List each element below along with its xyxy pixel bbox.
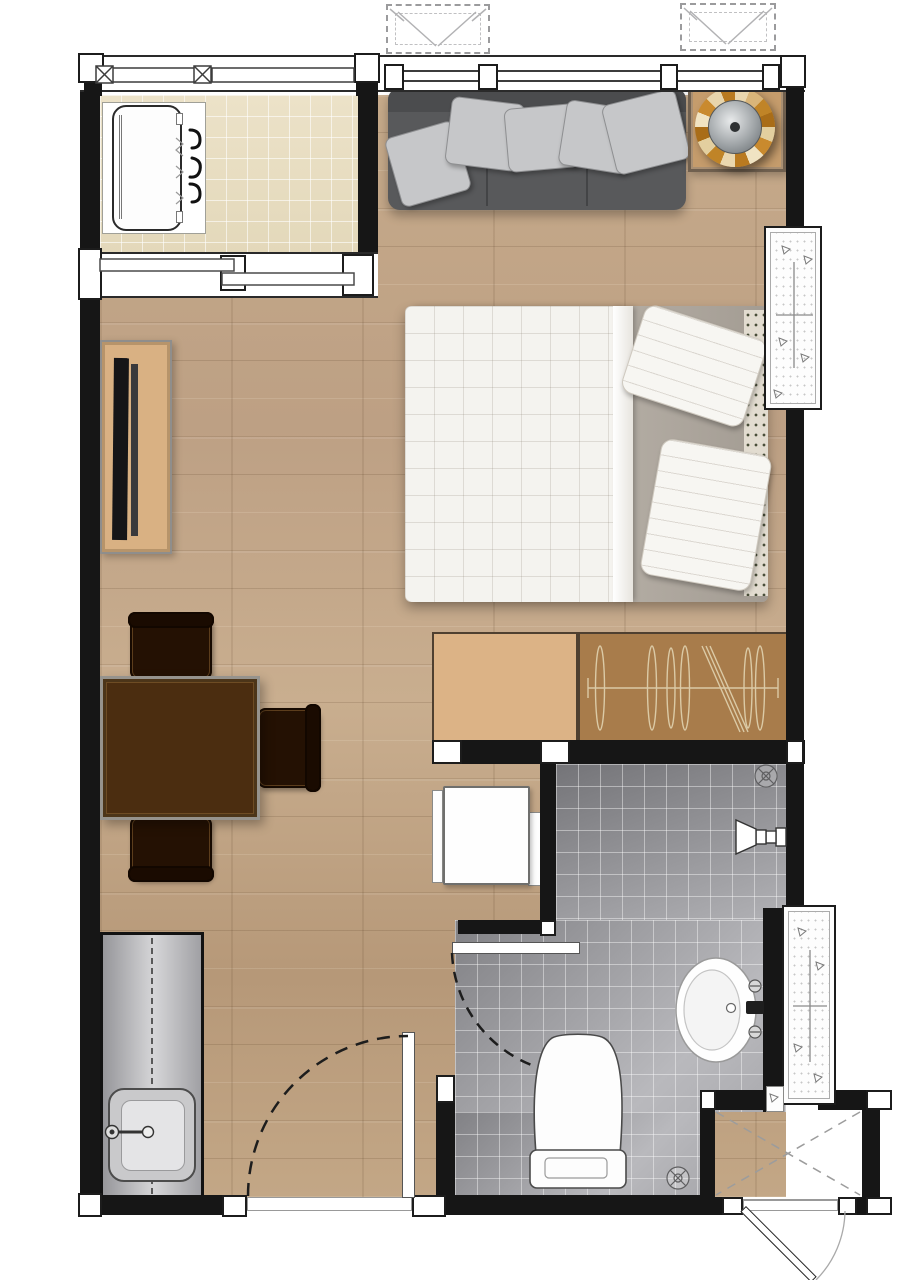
column-block bbox=[78, 53, 104, 83]
bathroom-shower-floor bbox=[556, 764, 786, 922]
tv-screen bbox=[112, 358, 129, 540]
wall-alcove-right bbox=[862, 1110, 880, 1197]
floor-plan-canvas bbox=[0, 0, 905, 1280]
wall-right-upper bbox=[786, 88, 804, 764]
white-cabinet bbox=[443, 786, 530, 885]
column-block bbox=[78, 248, 102, 300]
dining-chair-back bbox=[305, 704, 321, 792]
entry-door-leaf bbox=[740, 1206, 816, 1280]
column-block bbox=[354, 53, 380, 83]
wall-wardrobe bbox=[432, 740, 805, 764]
bed-duvet bbox=[405, 306, 617, 602]
wall-post bbox=[84, 82, 102, 96]
column-block bbox=[786, 740, 804, 764]
wall-top-window-band bbox=[80, 55, 805, 92]
ac-unit-outline bbox=[386, 4, 490, 54]
decor-bowl-center bbox=[730, 122, 740, 132]
main-door-threshold bbox=[247, 1197, 412, 1211]
entry-door-sill bbox=[743, 1199, 838, 1211]
window-jamb bbox=[478, 64, 498, 90]
window-jamb bbox=[762, 64, 780, 90]
entry-door-swing-arc bbox=[816, 1211, 845, 1280]
white-cabinet-flap bbox=[432, 790, 443, 883]
bathroom-door-leaf bbox=[452, 942, 580, 954]
bed-duvet-fold bbox=[613, 306, 633, 602]
wall-right-bath-lower bbox=[763, 908, 784, 1112]
wall-post bbox=[356, 82, 376, 96]
bathroom-floor-lower bbox=[455, 1112, 700, 1197]
wall-bath-left-upper bbox=[540, 764, 556, 924]
column-block bbox=[436, 1075, 455, 1103]
kitchen-sink-basin bbox=[121, 1100, 185, 1171]
ac-ledge-lower bbox=[782, 905, 836, 1105]
side-table bbox=[688, 78, 786, 172]
sliding-door-jamb bbox=[342, 254, 374, 296]
column-block bbox=[866, 1090, 892, 1110]
column-block bbox=[540, 740, 570, 764]
dining-chair-back bbox=[128, 866, 214, 882]
wall-alcove-top-a bbox=[715, 1090, 768, 1110]
column-block bbox=[432, 740, 462, 764]
column-block bbox=[722, 1197, 743, 1215]
column-block bbox=[412, 1195, 446, 1217]
washing-machine bbox=[112, 105, 182, 231]
ac-unit-outline bbox=[680, 3, 776, 51]
column-block bbox=[78, 1193, 102, 1217]
ac-ledge-upper bbox=[764, 226, 822, 410]
ac-unit-inner bbox=[689, 12, 767, 42]
washer-door-line bbox=[119, 115, 122, 219]
dining-chair-back bbox=[128, 612, 214, 628]
wardrobe bbox=[578, 632, 788, 742]
washer-tab bbox=[176, 211, 183, 223]
wall-alcove-bottom-a bbox=[700, 1197, 722, 1215]
ac-unit-inner bbox=[395, 13, 481, 45]
wall-alcove-left bbox=[700, 1110, 715, 1197]
wall-balcony-divider bbox=[358, 80, 378, 255]
tv-frame-bar bbox=[131, 364, 138, 536]
column-block bbox=[780, 55, 806, 88]
window-jamb bbox=[384, 64, 404, 90]
dresser bbox=[432, 632, 578, 742]
dining-table bbox=[100, 676, 260, 820]
bed-pillow bbox=[639, 437, 773, 592]
column-block bbox=[540, 920, 556, 936]
wall-right-bath bbox=[786, 764, 804, 908]
column-block bbox=[222, 1195, 247, 1217]
window-jamb bbox=[660, 64, 678, 90]
column-block bbox=[838, 1197, 857, 1215]
washer-tab bbox=[176, 113, 183, 125]
main-door-leaf bbox=[402, 1032, 415, 1198]
column-block bbox=[700, 1090, 716, 1110]
sliding-door-jamb bbox=[220, 255, 246, 291]
column-block bbox=[866, 1197, 892, 1215]
ac-ledge-tab bbox=[766, 1086, 784, 1112]
wall-bottom-b bbox=[446, 1195, 700, 1215]
